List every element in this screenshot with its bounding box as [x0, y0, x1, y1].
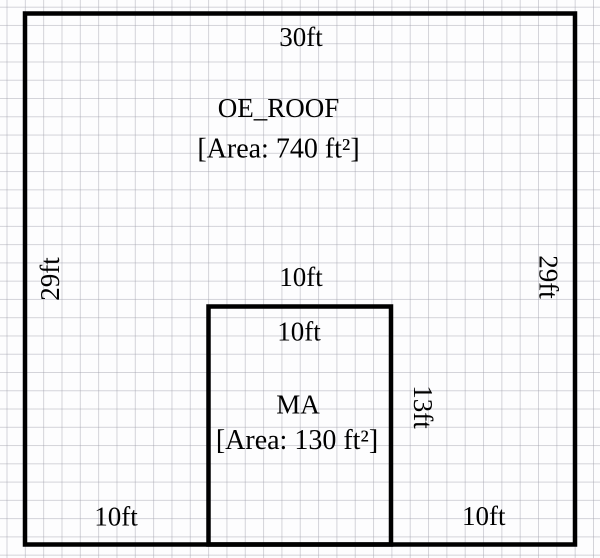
svg-text:10ft: 10ft [462, 501, 506, 531]
svg-text:30ft: 30ft [279, 22, 323, 52]
svg-text:10ft: 10ft [279, 262, 323, 292]
svg-text:[Area: 130 ft²]: [Area: 130 ft²] [216, 425, 378, 456]
svg-text:13ft: 13ft [408, 385, 438, 429]
svg-text:10ft: 10ft [277, 317, 321, 347]
svg-text:29ft: 29ft [35, 257, 65, 301]
svg-text:[Area: 740 ft²]: [Area: 740 ft²] [197, 134, 359, 165]
svg-text:MA: MA [276, 390, 320, 420]
svg-text:10ft: 10ft [94, 502, 138, 532]
svg-text:29ft: 29ft [534, 255, 564, 299]
svg-text:OE_ROOF: OE_ROOF [218, 93, 340, 123]
